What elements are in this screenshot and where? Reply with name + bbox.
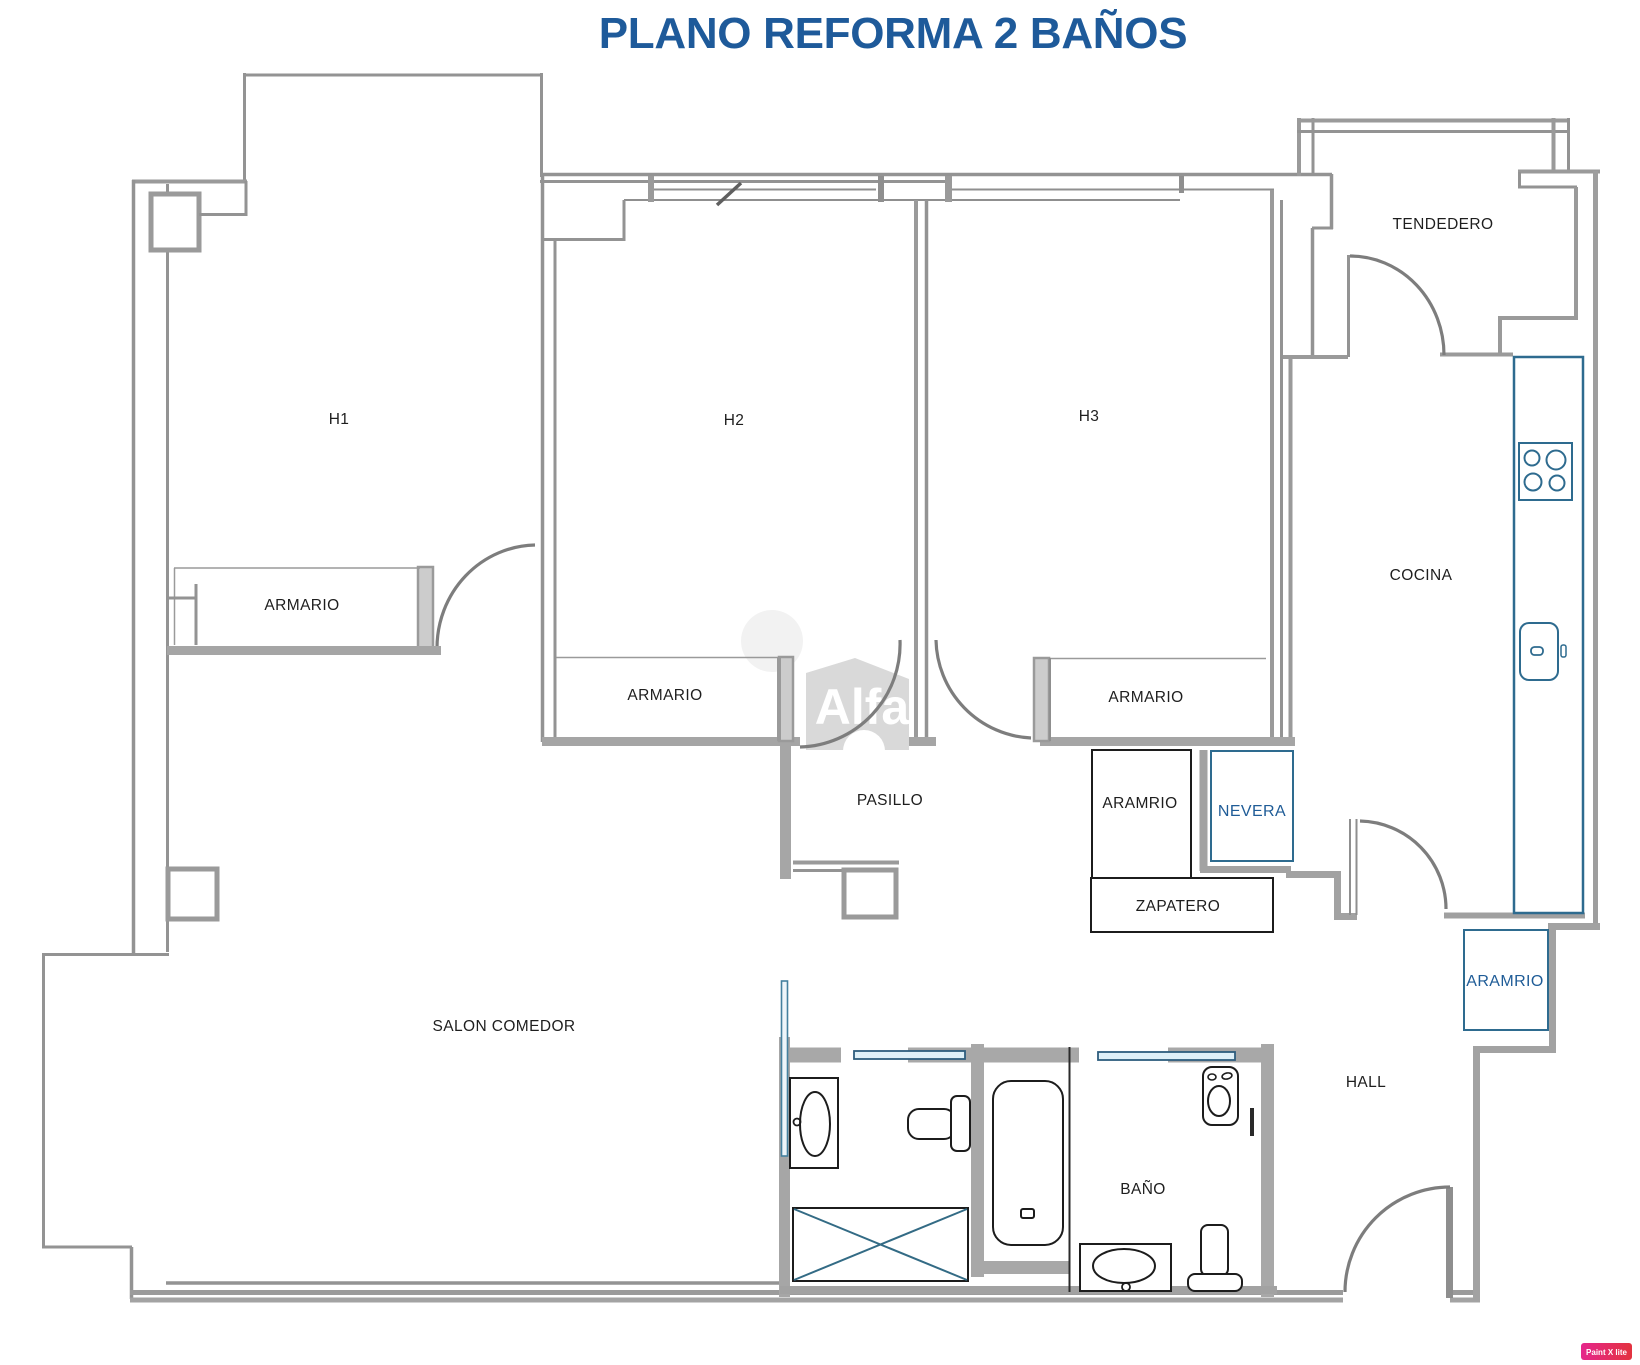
- svg-text:H1: H1: [329, 411, 350, 428]
- svg-text:Paint X lite: Paint X lite: [1586, 1348, 1627, 1357]
- svg-text:NEVERA: NEVERA: [1218, 803, 1286, 820]
- svg-text:ARMARIO: ARMARIO: [1108, 689, 1183, 706]
- svg-text:COCINA: COCINA: [1390, 567, 1453, 584]
- svg-text:H2: H2: [724, 412, 745, 429]
- svg-text:Alfa: Alfa: [815, 679, 911, 735]
- svg-text:ZAPATERO: ZAPATERO: [1136, 898, 1220, 915]
- svg-text:ARAMRIO: ARAMRIO: [1102, 795, 1177, 812]
- svg-text:HALL: HALL: [1346, 1074, 1386, 1091]
- svg-text:PASILLO: PASILLO: [857, 792, 923, 809]
- svg-text:TENDEDERO: TENDEDERO: [1393, 216, 1494, 233]
- svg-text:ARMARIO: ARMARIO: [627, 687, 702, 704]
- svg-text:PLANO REFORMA 2 BAÑOS: PLANO REFORMA 2 BAÑOS: [599, 8, 1188, 58]
- svg-text:ARAMRIO: ARAMRIO: [1466, 973, 1543, 990]
- svg-text:BAÑO: BAÑO: [1120, 1181, 1166, 1198]
- svg-text:SALON COMEDOR: SALON COMEDOR: [433, 1018, 576, 1035]
- svg-text:ARMARIO: ARMARIO: [264, 597, 339, 614]
- svg-text:H3: H3: [1079, 408, 1100, 425]
